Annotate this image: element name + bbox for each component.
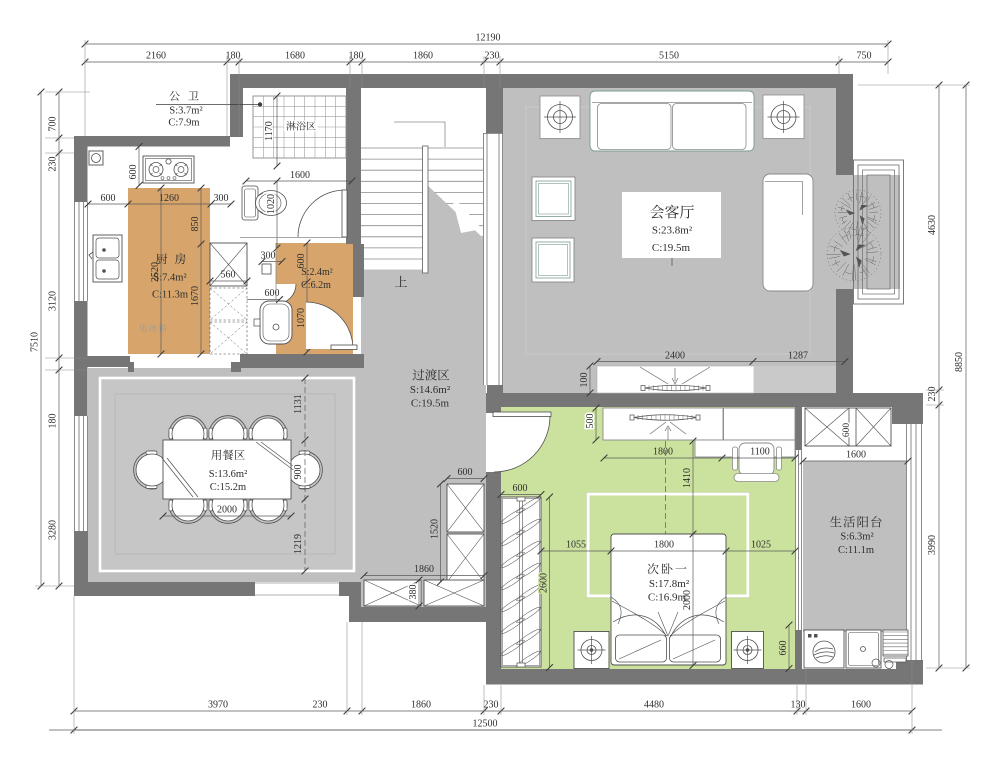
svg-text:C:16.9m: C:16.9m <box>648 592 687 604</box>
svg-text:C:6.2m: C:6.2m <box>301 280 331 291</box>
svg-text:8850: 8850 <box>954 352 965 372</box>
svg-text:1860: 1860 <box>413 51 433 62</box>
svg-text:3970: 3970 <box>208 700 228 711</box>
svg-text:600: 600 <box>296 254 307 269</box>
svg-text:1070: 1070 <box>296 308 307 328</box>
svg-text:560: 560 <box>221 270 236 281</box>
svg-text:C:11.1m: C:11.1m <box>838 545 874 556</box>
svg-text:380: 380 <box>408 585 419 600</box>
svg-text:S:13.6m²: S:13.6m² <box>209 469 247 480</box>
svg-text:4630: 4630 <box>927 215 938 235</box>
svg-text:2000: 2000 <box>682 590 693 610</box>
svg-text:7510: 7510 <box>30 332 41 352</box>
svg-text:S:14.6m²: S:14.6m² <box>410 384 451 396</box>
svg-text:1860: 1860 <box>414 564 434 575</box>
svg-text:2600: 2600 <box>538 573 549 593</box>
svg-text:230: 230 <box>927 387 938 402</box>
svg-text:S:17.8m²: S:17.8m² <box>649 578 690 590</box>
svg-text:230: 230 <box>313 700 328 711</box>
svg-text:300: 300 <box>214 193 229 204</box>
svg-text:C:15.2m: C:15.2m <box>210 482 246 493</box>
svg-text:1100: 1100 <box>750 447 770 458</box>
svg-text:1219: 1219 <box>293 534 304 554</box>
svg-text:3990: 3990 <box>927 535 938 555</box>
svg-text:12190: 12190 <box>476 33 501 44</box>
svg-text:S:3.7m²: S:3.7m² <box>169 106 202 117</box>
svg-text:5150: 5150 <box>659 51 679 62</box>
svg-text:900: 900 <box>293 465 304 480</box>
svg-text:600: 600 <box>128 165 139 180</box>
svg-text:600: 600 <box>458 467 473 478</box>
svg-text:C:19.5m: C:19.5m <box>411 398 450 410</box>
svg-text:600: 600 <box>101 193 116 204</box>
svg-text:1520: 1520 <box>429 519 440 539</box>
svg-text:700: 700 <box>48 117 59 132</box>
svg-text:1260: 1260 <box>159 193 179 204</box>
svg-text:S:23.8m²: S:23.8m² <box>652 225 693 237</box>
svg-text:230: 230 <box>48 157 59 172</box>
svg-text:1670: 1670 <box>190 286 201 306</box>
svg-text:2160: 2160 <box>146 51 166 62</box>
svg-text:2400: 2400 <box>665 350 685 361</box>
svg-text:600: 600 <box>842 423 852 438</box>
svg-text:1600: 1600 <box>290 170 310 181</box>
svg-text:1287: 1287 <box>788 350 808 361</box>
svg-text:1020: 1020 <box>266 194 277 214</box>
svg-text:C:11.3m: C:11.3m <box>152 290 188 301</box>
svg-text:500: 500 <box>585 414 596 429</box>
svg-text:C:7.9m: C:7.9m <box>168 118 199 129</box>
svg-text:C:19.5m: C:19.5m <box>652 242 691 254</box>
svg-text:1680: 1680 <box>285 51 305 62</box>
svg-text:180: 180 <box>226 51 241 62</box>
svg-text:600: 600 <box>265 288 280 299</box>
svg-text:1170: 1170 <box>264 121 275 141</box>
svg-text:100: 100 <box>579 373 590 388</box>
svg-text:230: 230 <box>484 700 499 711</box>
svg-text:660: 660 <box>778 641 789 656</box>
svg-text:3120: 3120 <box>48 291 59 311</box>
svg-text:1860: 1860 <box>411 700 431 711</box>
svg-text:230: 230 <box>485 51 500 62</box>
svg-text:1800: 1800 <box>654 540 674 551</box>
svg-text:2520: 2520 <box>150 262 161 282</box>
svg-text:1131: 1131 <box>293 394 304 414</box>
svg-text:1055: 1055 <box>566 540 586 551</box>
svg-text:1025: 1025 <box>751 540 771 551</box>
svg-text:3280: 3280 <box>48 520 59 540</box>
svg-text:12500: 12500 <box>473 719 498 730</box>
svg-text:1410: 1410 <box>682 468 693 488</box>
svg-text:2000: 2000 <box>217 505 237 516</box>
svg-text:1600: 1600 <box>851 700 871 711</box>
svg-text:180: 180 <box>349 51 364 62</box>
svg-text:4480: 4480 <box>644 700 664 711</box>
svg-text:300: 300 <box>261 251 276 262</box>
svg-text:600: 600 <box>513 483 528 494</box>
svg-text:750: 750 <box>857 51 872 62</box>
svg-text:850: 850 <box>190 217 201 232</box>
svg-text:180: 180 <box>48 414 59 429</box>
svg-text:S:6.3m²: S:6.3m² <box>840 532 873 543</box>
svg-text:1600: 1600 <box>846 450 866 461</box>
svg-text:1800: 1800 <box>653 447 673 458</box>
svg-text:130: 130 <box>791 700 806 711</box>
